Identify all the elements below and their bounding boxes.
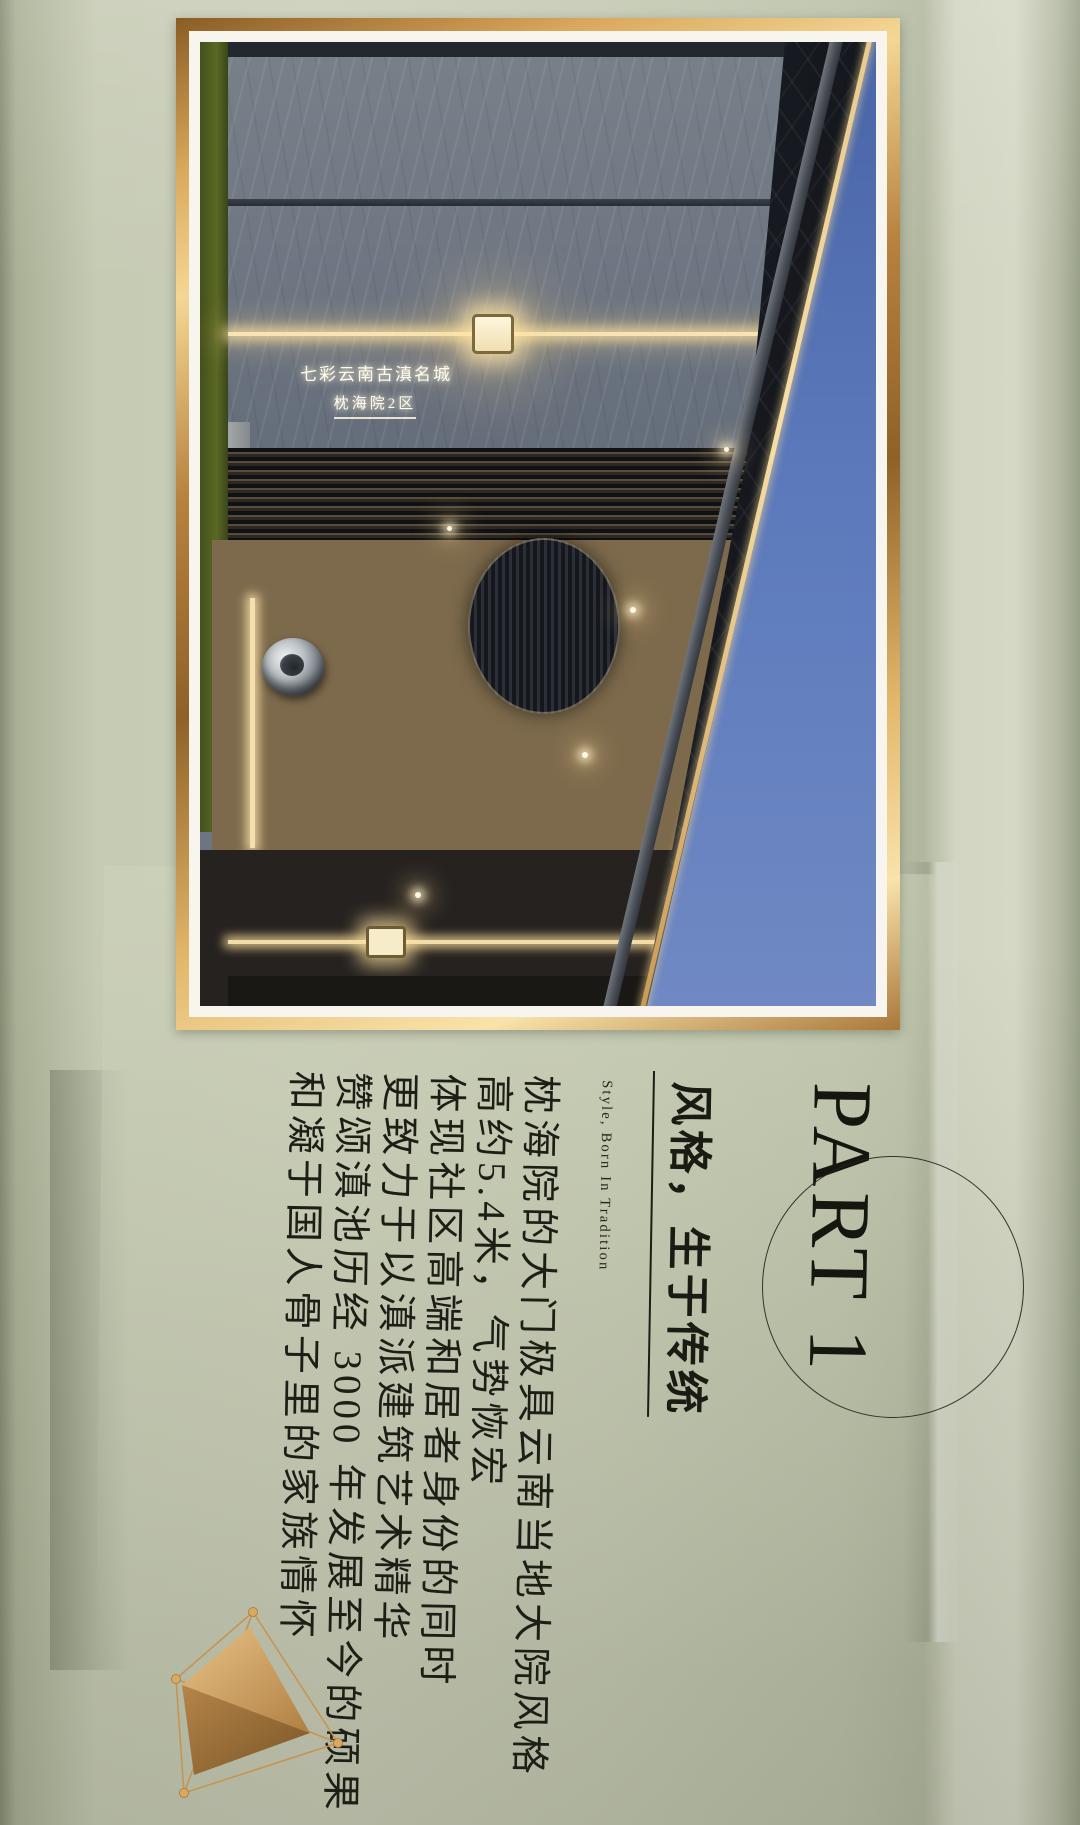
- metal-edge-strip: [200, 42, 876, 57]
- gate-sign: 七彩云南古滇名城 枕海院2区: [300, 360, 450, 419]
- lower-wall-lamp: [366, 926, 406, 958]
- ceiling-downlight: [415, 892, 421, 898]
- chrome-sculpture: [262, 638, 324, 696]
- gold-picture-frame: 七彩云南古滇名城 枕海院2区: [176, 18, 900, 1030]
- floor-light-strip: [250, 598, 255, 848]
- ceiling-downlight: [582, 752, 588, 758]
- circle-outline-decoration: [762, 1156, 1024, 1418]
- entrance-night-photo: 七彩云南古滇名城 枕海院2区: [200, 42, 876, 1006]
- ceiling-downlight: [724, 447, 729, 452]
- section-subtitle-english: Style, Born In Tradition: [584, 1070, 615, 1825]
- gold-tetrahedron-decoration: [138, 1585, 370, 1825]
- gate-sign-project-name: 七彩云南古滇名城: [300, 360, 450, 385]
- section-title: 风格，生于传统: [647, 1071, 727, 1418]
- ceiling-downlight: [447, 526, 452, 531]
- wall-lamp: [472, 314, 514, 354]
- promo-page: 七彩云南古滇名城 枕海院2区: [0, 0, 1080, 1825]
- round-screen-gate: [468, 538, 620, 714]
- photo-mat: 七彩云南古滇名城 枕海院2区: [189, 31, 887, 1017]
- ceiling-downlight: [630, 607, 636, 613]
- gate-sign-area-name: 枕海院2区: [334, 392, 417, 419]
